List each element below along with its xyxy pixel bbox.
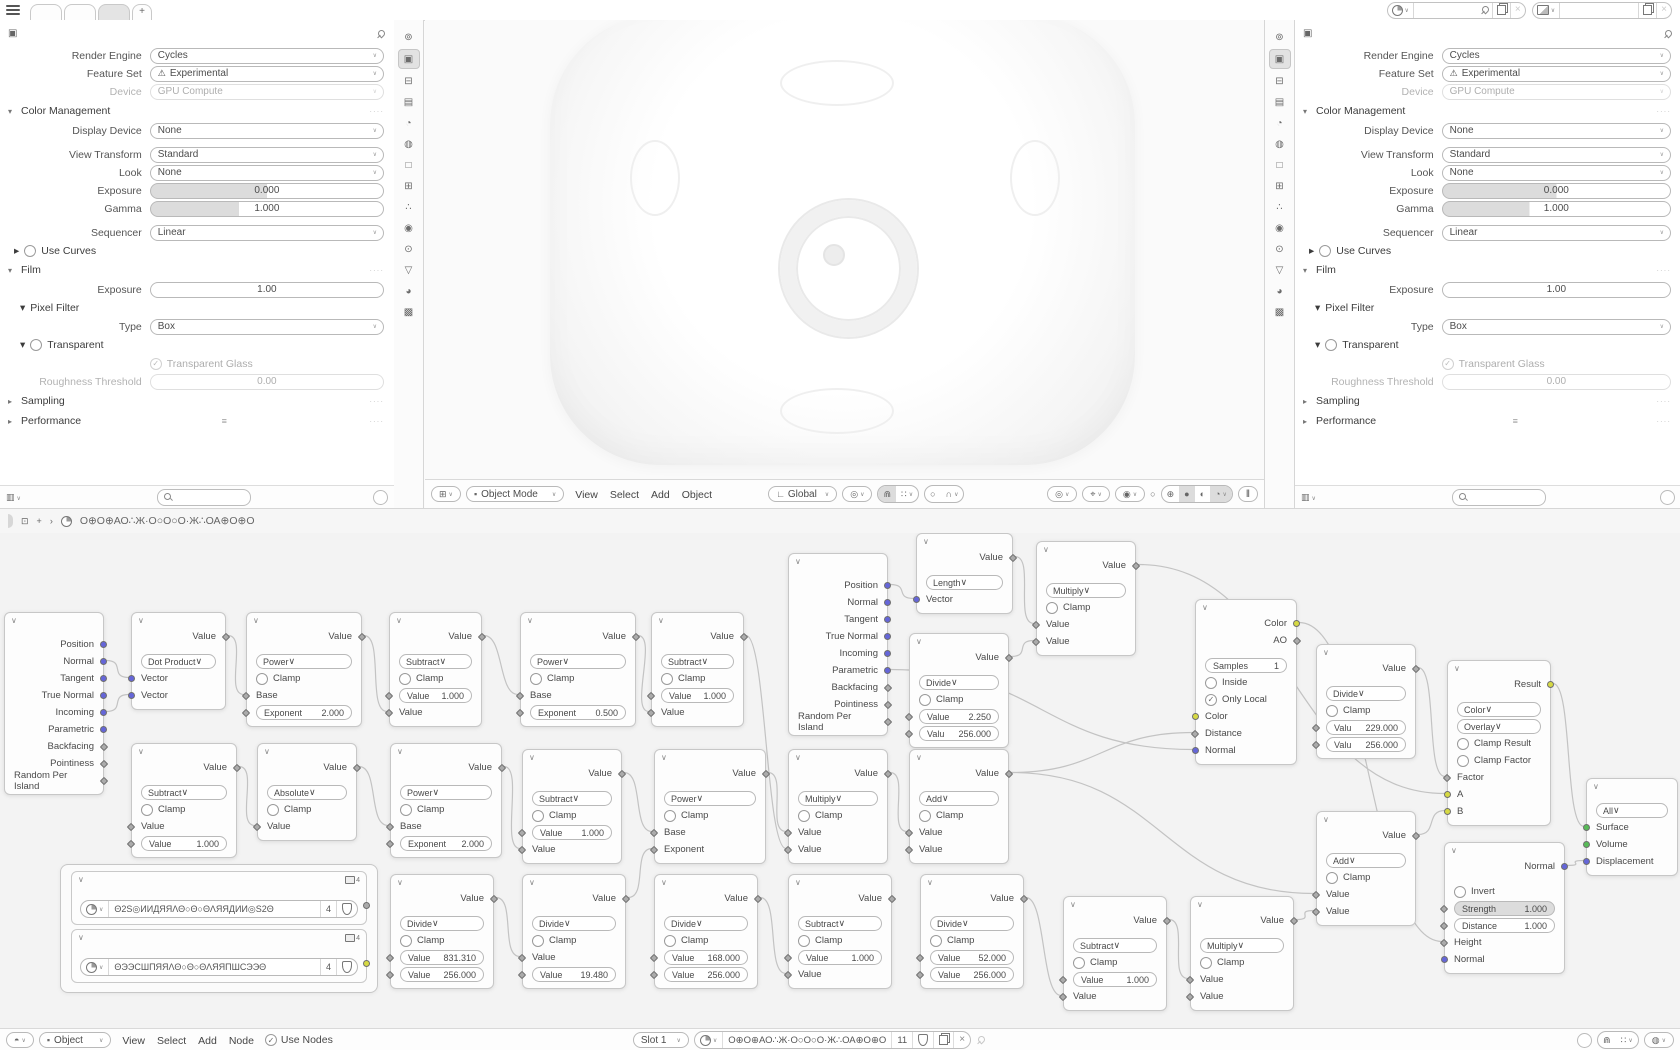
section-performance[interactable]: ▸Performance≡···· bbox=[0, 411, 394, 431]
scene-unlink-button[interactable]: × bbox=[1511, 3, 1525, 18]
look-dropdown[interactable]: None∨ bbox=[1442, 165, 1671, 181]
fake-user-button[interactable] bbox=[337, 901, 357, 917]
viewlayer-selector[interactable]: ∨ bbox=[1533, 3, 1560, 18]
list-menu-icon[interactable]: ≡ bbox=[222, 416, 227, 426]
value-field[interactable]: Value256.000 bbox=[400, 967, 484, 982]
input-socket[interactable] bbox=[1192, 747, 1199, 754]
use-nodes-checkbox[interactable]: ✓Use Nodes bbox=[265, 1034, 333, 1046]
node-abs[interactable]: ∨ValueAbsolute∨ClampValue bbox=[257, 743, 357, 841]
display-device-dropdown[interactable]: None∨ bbox=[1442, 123, 1671, 139]
checkbox[interactable] bbox=[919, 694, 931, 706]
checkbox[interactable] bbox=[530, 673, 542, 685]
value-field[interactable]: Value1.000 bbox=[661, 688, 734, 703]
output-socket[interactable] bbox=[884, 633, 891, 640]
proportional-falloff[interactable]: ∩∨ bbox=[941, 486, 964, 502]
power-dropdown[interactable]: Power∨ bbox=[400, 785, 492, 800]
output-socket[interactable] bbox=[100, 692, 107, 699]
node-length[interactable]: ∨ValueLength∨Vector bbox=[916, 533, 1013, 614]
subsection-transparent[interactable]: ▾Transparent bbox=[0, 336, 394, 354]
menu-add[interactable]: Add bbox=[192, 1035, 223, 1047]
scene-properties-tab[interactable]: ◔ bbox=[399, 114, 419, 132]
collapsed-use-curves[interactable]: ▸Use Curves bbox=[1295, 242, 1680, 260]
feature-set-dropdown[interactable]: ⚠Experimental∨ bbox=[150, 66, 384, 82]
node-header[interactable]: ∨4 bbox=[72, 872, 366, 887]
collapse-chevron-icon[interactable]: ∨ bbox=[529, 878, 535, 887]
node-subD[interactable]: ∨ValueSubtract∨ClampValue1.000Value bbox=[1063, 896, 1167, 1011]
value-field[interactable]: Value52.000 bbox=[930, 950, 1014, 965]
editor-type-icon[interactable]: ▥∨ bbox=[6, 492, 21, 503]
section-color-management[interactable]: ▾Color Management···· bbox=[1295, 101, 1680, 121]
add-dropdown[interactable]: Add∨ bbox=[1326, 853, 1406, 868]
world-properties-tab[interactable]: ◍ bbox=[399, 135, 419, 153]
collapsed-use-curves[interactable]: ▸Use Curves bbox=[0, 242, 394, 260]
node-addR[interactable]: ∨ValueAdd∨ClampValueValue bbox=[1316, 811, 1416, 926]
device-dropdown[interactable]: GPU Compute∨ bbox=[1442, 84, 1671, 100]
value-field[interactable]: Value256.000 bbox=[664, 967, 748, 982]
material-unlink-button[interactable]: × bbox=[954, 1032, 970, 1048]
render-properties-tab[interactable]: ▣ bbox=[398, 49, 420, 69]
viewlayer-name-field[interactable] bbox=[1560, 3, 1639, 18]
node-header[interactable]: ∨ bbox=[1064, 897, 1166, 912]
node-dot[interactable]: ∨ValueDot Product∨VectorVector bbox=[131, 612, 226, 710]
checkbox[interactable] bbox=[661, 673, 673, 685]
snap-mode[interactable]: ∷∨ bbox=[896, 486, 918, 502]
node-geometry2[interactable]: ∨PositionNormalTangentTrue NormalIncomin… bbox=[788, 553, 888, 736]
subsection-transparent[interactable]: ▾Transparent bbox=[1295, 336, 1680, 354]
subsection-pixel-filter[interactable]: ▾Pixel Filter bbox=[0, 299, 394, 317]
material-properties-tab[interactable]: ◕ bbox=[399, 282, 419, 300]
filter-button[interactable] bbox=[1660, 490, 1675, 505]
frame-node-1[interactable]: ∨4∨ΘЭЭСШПЯЯΛΘ○Θ○ΘΛЯЯПШСЭЭΘ4 bbox=[71, 929, 367, 983]
collapse-chevron-icon[interactable]: ∨ bbox=[138, 747, 144, 756]
node-header[interactable]: ∨ bbox=[789, 750, 887, 765]
collapse-handle[interactable] bbox=[8, 514, 13, 528]
node-header[interactable]: ∨ bbox=[655, 750, 765, 765]
value-field[interactable]: Value831.310 bbox=[400, 950, 484, 965]
valu-field[interactable]: Valu256.000 bbox=[1326, 737, 1406, 752]
strength-field[interactable]: Strength1.000 bbox=[1454, 901, 1555, 916]
node-frame[interactable]: ∨4∨Θ2Ѕ◎ИИДЯЯΛΘ○Θ○ΘΛЯЯДИИ◎Ѕ2Θ4∨4∨ΘЭЭСШПЯЯ… bbox=[60, 864, 378, 993]
collapse-chevron-icon[interactable]: ∨ bbox=[923, 537, 929, 546]
output-socket[interactable] bbox=[363, 960, 370, 967]
collapse-chevron-icon[interactable]: ∨ bbox=[397, 878, 403, 887]
checkbox[interactable] bbox=[1326, 705, 1338, 717]
input-socket[interactable] bbox=[128, 675, 135, 682]
node-header[interactable]: ∨ bbox=[917, 534, 1012, 549]
collapse-chevron-icon[interactable]: ∨ bbox=[795, 878, 801, 887]
list-menu-icon[interactable]: ≡ bbox=[1513, 416, 1518, 426]
divide-dropdown[interactable]: Divide∨ bbox=[532, 916, 616, 931]
particles-properties-tab[interactable]: ∴ bbox=[399, 198, 419, 216]
subsection-checkbox[interactable] bbox=[30, 339, 42, 351]
color-dropdown[interactable]: Color∨ bbox=[1457, 702, 1541, 717]
orientation-dropdown[interactable]: ∟Global∨ bbox=[768, 486, 837, 502]
collapse-chevron-icon[interactable]: ∨ bbox=[78, 933, 84, 942]
output-socket[interactable] bbox=[1547, 681, 1554, 688]
snap-toggle[interactable]: ⋒ bbox=[878, 486, 896, 502]
checkbox[interactable] bbox=[400, 804, 412, 816]
node-header[interactable]: ∨ bbox=[523, 875, 625, 890]
checkbox[interactable] bbox=[1457, 738, 1469, 750]
subsection-pixel-filter[interactable]: ▾Pixel Filter bbox=[1295, 299, 1680, 317]
section-sampling[interactable]: ▸Sampling···· bbox=[0, 391, 394, 411]
node-bump[interactable]: ∨NormalInvertStrength1.000Distance1.000H… bbox=[1444, 842, 1565, 974]
value-field[interactable]: Value1.000 bbox=[399, 688, 472, 703]
overlays-dropdown[interactable]: ⌖∨ bbox=[1082, 486, 1109, 502]
value-field[interactable]: Value256.000 bbox=[930, 967, 1014, 982]
node-header[interactable]: ∨ bbox=[910, 634, 1008, 649]
node-header[interactable]: ∨ bbox=[652, 613, 743, 628]
object-properties-tab[interactable]: □ bbox=[1270, 156, 1290, 174]
node-header[interactable]: ∨ bbox=[1587, 779, 1677, 794]
checkbox[interactable] bbox=[1326, 872, 1338, 884]
subtract-dropdown[interactable]: Subtract∨ bbox=[661, 654, 734, 669]
editor-type-icon[interactable]: ▥∨ bbox=[1301, 492, 1316, 503]
dot-product-dropdown[interactable]: Dot Product∨ bbox=[141, 654, 216, 669]
all-dropdown[interactable]: All∨ bbox=[1596, 803, 1668, 818]
output-socket[interactable] bbox=[363, 902, 370, 909]
section-performance[interactable]: ▸Performance≡···· bbox=[1295, 411, 1680, 431]
length-dropdown[interactable]: Length∨ bbox=[926, 575, 1003, 590]
view-transform-dropdown[interactable]: Standard∨ bbox=[150, 147, 384, 163]
samples-field[interactable]: Samples1 bbox=[1205, 658, 1287, 673]
object-data-properties-tab[interactable]: ▽ bbox=[399, 261, 419, 279]
node-header[interactable]: ∨ bbox=[132, 744, 236, 759]
checkbox[interactable] bbox=[1454, 886, 1466, 898]
checkbox[interactable] bbox=[256, 673, 268, 685]
menu-select[interactable]: Select bbox=[151, 1035, 192, 1047]
render-engine-dropdown[interactable]: Cycles∨ bbox=[150, 48, 384, 64]
checkbox[interactable] bbox=[399, 673, 411, 685]
collapse-chevron-icon[interactable]: ∨ bbox=[78, 875, 84, 884]
physics-properties-tab[interactable]: ◉ bbox=[399, 219, 419, 237]
checkbox[interactable] bbox=[664, 810, 676, 822]
material-properties-tab[interactable]: ◕ bbox=[1270, 282, 1290, 300]
checkbox[interactable]: ✓ bbox=[1205, 694, 1217, 706]
multiply-dropdown[interactable]: Multiply∨ bbox=[1046, 583, 1126, 598]
node-header[interactable]: ∨ bbox=[1317, 812, 1415, 827]
value-field[interactable]: Value19.480 bbox=[532, 967, 616, 982]
material-new-button[interactable] bbox=[934, 1032, 954, 1048]
node-ao[interactable]: ∨ColorAOSamples1Inside✓Only LocalColorDi… bbox=[1195, 599, 1297, 765]
pin-icon[interactable] bbox=[1480, 6, 1488, 14]
output-socket[interactable] bbox=[884, 667, 891, 674]
viewlayer-remove-button[interactable]: × bbox=[1657, 3, 1671, 18]
input-socket[interactable] bbox=[1441, 956, 1448, 963]
node-header[interactable]: ∨ bbox=[1445, 843, 1564, 858]
gamma-field[interactable]: 1.000 bbox=[1442, 201, 1671, 217]
divide-dropdown[interactable]: Divide∨ bbox=[400, 916, 484, 931]
subtract-dropdown[interactable]: Subtract∨ bbox=[399, 654, 472, 669]
value-field[interactable]: Value1.000 bbox=[1073, 972, 1157, 987]
collapse-chevron-icon[interactable]: ∨ bbox=[264, 747, 270, 756]
node-divB[interactable]: ∨ValueDivide∨ClampValueValue19.480 bbox=[522, 874, 626, 989]
fake-user-button[interactable] bbox=[913, 1032, 934, 1048]
frame-node-0[interactable]: ∨4∨Θ2Ѕ◎ИИДЯЯΛΘ○Θ○ΘΛЯЯДИИ◎Ѕ2Θ4 bbox=[71, 871, 367, 925]
subtract-dropdown[interactable]: Subtract∨ bbox=[798, 916, 882, 931]
input-socket[interactable] bbox=[1444, 791, 1451, 798]
collapse-chevron-icon[interactable]: ∨ bbox=[916, 637, 922, 646]
node-div229[interactable]: ∨ValueDivide∨ClampValu229.000Valu256.000 bbox=[1316, 644, 1416, 759]
exponent-field[interactable]: Exponent2.000 bbox=[256, 705, 352, 720]
collapse-chevron-icon[interactable]: ∨ bbox=[527, 616, 533, 625]
overlays-dropdown[interactable]: ◍∨ bbox=[1644, 1032, 1674, 1048]
collapse-chevron-icon[interactable]: ∨ bbox=[795, 753, 801, 762]
output-properties-tab[interactable]: ⊟ bbox=[399, 72, 419, 90]
collapse-chevron-icon[interactable]: ∨ bbox=[1202, 603, 1208, 612]
browse-material-button[interactable]: ∨ bbox=[81, 959, 109, 975]
node-header[interactable]: ∨ bbox=[789, 875, 891, 890]
constraints-properties-tab[interactable]: ⊙ bbox=[1270, 240, 1290, 258]
value-field[interactable]: Value2.250 bbox=[919, 709, 999, 724]
viewport-canvas[interactable] bbox=[425, 20, 1264, 480]
value-field[interactable]: Value1.000 bbox=[532, 825, 612, 840]
output-socket[interactable] bbox=[100, 675, 107, 682]
menu-select[interactable]: Select bbox=[604, 489, 645, 501]
tool-properties-tab[interactable]: ⊚ bbox=[1270, 28, 1290, 46]
editor-type-button[interactable]: ◓∨ bbox=[6, 1032, 34, 1048]
modifiers-properties-tab[interactable]: ⊞ bbox=[1270, 177, 1290, 195]
feature-set-dropdown[interactable]: ⚠Experimental∨ bbox=[1442, 66, 1671, 82]
node-header[interactable]: ∨ bbox=[789, 554, 887, 569]
texture-properties-tab[interactable]: ▩ bbox=[1270, 303, 1290, 321]
node-header[interactable]: ∨ bbox=[1196, 600, 1296, 615]
add-workspace-button[interactable]: + bbox=[132, 4, 152, 20]
node-subC[interactable]: ∨ValueSubtract∨ClampValue1.000Value bbox=[788, 874, 892, 989]
input-socket[interactable] bbox=[1583, 824, 1590, 831]
collapse-chevron-icon[interactable]: ∨ bbox=[661, 753, 667, 762]
node-header[interactable]: ∨ bbox=[390, 613, 481, 628]
hamburger-menu-icon[interactable] bbox=[6, 5, 20, 15]
checkbox[interactable] bbox=[1046, 602, 1058, 614]
exposure-field[interactable]: 1.00 bbox=[1442, 282, 1671, 298]
output-socket[interactable] bbox=[884, 616, 891, 623]
distance-field[interactable]: Distance1.000 bbox=[1454, 918, 1555, 933]
use-curves-checkbox[interactable] bbox=[24, 245, 36, 257]
proportional-toggle[interactable]: ○ bbox=[925, 486, 940, 502]
menu-add[interactable]: Add bbox=[645, 489, 676, 501]
search-input[interactable] bbox=[1452, 489, 1546, 506]
output-socket[interactable] bbox=[100, 709, 107, 716]
node-header[interactable]: ∨ bbox=[910, 750, 1008, 765]
slot-dropdown[interactable]: Slot 1∨ bbox=[633, 1032, 689, 1048]
mode-dropdown[interactable]: ▪Object Mode∨ bbox=[466, 486, 564, 502]
input-socket[interactable] bbox=[1583, 841, 1590, 848]
collapse-chevron-icon[interactable]: ∨ bbox=[396, 616, 402, 625]
browse-material-button[interactable]: ∨ bbox=[81, 901, 109, 917]
users-count[interactable]: 4 bbox=[321, 959, 337, 975]
collapse-chevron-icon[interactable]: ∨ bbox=[1197, 900, 1203, 909]
exponent-field[interactable]: Exponent2.000 bbox=[400, 836, 492, 851]
subtract-dropdown[interactable]: Subtract∨ bbox=[532, 791, 612, 806]
node-powC[interactable]: ∨ValuePower∨ClampBaseExponent bbox=[654, 749, 766, 864]
roughness-threshold-field[interactable]: 0.00 bbox=[150, 374, 384, 390]
snap-mode[interactable]: ∷∨ bbox=[1616, 1032, 1638, 1048]
collapse-chevron-icon[interactable]: ∨ bbox=[11, 616, 17, 625]
collapse-chevron-icon[interactable]: ∨ bbox=[253, 616, 259, 625]
viewlayer-new-button[interactable] bbox=[1639, 3, 1657, 18]
divide-dropdown[interactable]: Divide∨ bbox=[664, 916, 748, 931]
node-header[interactable]: ∨ bbox=[247, 613, 361, 628]
node-header[interactable]: ∨ bbox=[1448, 661, 1550, 676]
add-dropdown[interactable]: Add∨ bbox=[919, 791, 999, 806]
collapse-chevron-icon[interactable]: ∨ bbox=[1070, 900, 1076, 909]
datablock-name-field[interactable]: ΘЭЭСШПЯЯΛΘ○Θ○ΘΛЯЯПШСЭЭΘ bbox=[109, 959, 321, 975]
use-curves-checkbox[interactable] bbox=[1319, 245, 1331, 257]
checkbox[interactable] bbox=[532, 810, 544, 822]
scene-properties-tab[interactable]: ◔ bbox=[1270, 114, 1290, 132]
node-header[interactable]: ∨ bbox=[521, 613, 635, 628]
scene-name-field[interactable] bbox=[1414, 3, 1493, 18]
input-socket[interactable] bbox=[1192, 713, 1199, 720]
fake-user-button[interactable] bbox=[337, 959, 357, 975]
device-dropdown[interactable]: GPU Compute∨ bbox=[150, 84, 384, 100]
node-header[interactable]: ∨ bbox=[258, 744, 356, 759]
node-header[interactable]: ∨ bbox=[523, 750, 621, 765]
output-socket[interactable] bbox=[884, 582, 891, 589]
checkbox[interactable] bbox=[798, 935, 810, 947]
section-film[interactable]: ▾Film···· bbox=[0, 260, 394, 280]
output-properties-tab[interactable]: ⊟ bbox=[1270, 72, 1290, 90]
subtract-dropdown[interactable]: Subtract∨ bbox=[141, 785, 227, 800]
collapse-chevron-icon[interactable]: ∨ bbox=[1451, 846, 1457, 855]
pin-icon[interactable] bbox=[1663, 30, 1671, 38]
type-dropdown[interactable]: Box∨ bbox=[150, 319, 384, 335]
collapse-chevron-icon[interactable]: ∨ bbox=[661, 878, 667, 887]
divide-dropdown[interactable]: Divide∨ bbox=[1326, 686, 1406, 701]
collapse-chevron-icon[interactable]: ∨ bbox=[927, 878, 933, 887]
value-field[interactable]: Value1.000 bbox=[798, 950, 882, 965]
gamma-field[interactable]: 1.000 bbox=[150, 201, 384, 217]
collapse-chevron-icon[interactable]: ∨ bbox=[1043, 545, 1049, 554]
checkbox[interactable] bbox=[798, 810, 810, 822]
divide-dropdown[interactable]: Divide∨ bbox=[919, 675, 999, 690]
collapse-chevron-icon[interactable]: ∨ bbox=[397, 747, 403, 756]
node-header[interactable]: ∨ bbox=[921, 875, 1023, 890]
checkbox[interactable] bbox=[1457, 755, 1469, 767]
browse-material-button[interactable]: ∨ bbox=[695, 1032, 723, 1048]
users-count[interactable]: 4 bbox=[321, 901, 337, 917]
node-divD[interactable]: ∨ValueDivide∨ClampValue52.000Value256.00… bbox=[920, 874, 1024, 989]
valu-field[interactable]: Valu256.000 bbox=[919, 726, 999, 741]
node-header[interactable]: ∨ bbox=[1037, 542, 1135, 557]
shading-rendered[interactable]: ◔∨ bbox=[1210, 486, 1232, 502]
tool-properties-tab[interactable]: ⊚ bbox=[399, 28, 419, 46]
node-header[interactable]: ∨ bbox=[5, 613, 103, 628]
output-socket[interactable] bbox=[1293, 620, 1300, 627]
power-dropdown[interactable]: Power∨ bbox=[256, 654, 352, 669]
modifiers-properties-tab[interactable]: ⊞ bbox=[399, 177, 419, 195]
node-subB[interactable]: ∨ValueSubtract∨ClampValue1.000Value bbox=[522, 749, 622, 864]
render-properties-tab[interactable]: ▣ bbox=[1269, 49, 1291, 69]
exposure-field[interactable]: 1.00 bbox=[150, 282, 384, 298]
node-canvas[interactable]: ∨PositionNormalTangentTrue NormalIncomin… bbox=[0, 533, 1680, 1029]
collapse-chevron-icon[interactable]: ∨ bbox=[529, 753, 535, 762]
node-divC[interactable]: ∨ValueDivide∨ClampValue168.000Value256.0… bbox=[654, 874, 758, 989]
texture-properties-tab[interactable]: ▩ bbox=[399, 303, 419, 321]
checkbox[interactable]: ✓ bbox=[150, 358, 162, 370]
overlay-dropdown[interactable]: Overlay∨ bbox=[1457, 719, 1541, 734]
input-socket[interactable] bbox=[1583, 858, 1590, 865]
menu-view[interactable]: View bbox=[116, 1035, 151, 1047]
node-mix[interactable]: ∨ResultColor∨Overlay∨Clamp ResultClamp F… bbox=[1447, 660, 1551, 826]
object-properties-tab[interactable]: □ bbox=[399, 156, 419, 174]
render-engine-dropdown[interactable]: Cycles∨ bbox=[1442, 48, 1671, 64]
node-power2[interactable]: ∨ValuePower∨ClampBaseExponent0.500 bbox=[520, 612, 636, 727]
physics-properties-tab[interactable]: ◉ bbox=[1270, 219, 1290, 237]
node-multC[interactable]: ∨ValueMultiply∨ClampValueValue bbox=[1190, 896, 1294, 1011]
viewport-3d[interactable]: ⊞∨ ▪Object Mode∨ ViewSelectAddObject ∟Gl… bbox=[425, 20, 1264, 508]
collapse-chevron-icon[interactable]: ∨ bbox=[1323, 815, 1329, 824]
node-divA[interactable]: ∨ValueDivide∨ClampValue831.310Value256.0… bbox=[390, 874, 494, 989]
look-dropdown[interactable]: None∨ bbox=[150, 165, 384, 181]
workspace-tab[interactable] bbox=[30, 4, 62, 20]
exposure-field[interactable]: 0.000 bbox=[150, 183, 384, 199]
node-geometry1[interactable]: ∨PositionNormalTangentTrue NormalIncomin… bbox=[4, 612, 104, 795]
valu-field[interactable]: Valu229.000 bbox=[1326, 720, 1406, 735]
show-gizmo-dropdown[interactable]: ◎∨ bbox=[1047, 486, 1077, 502]
type-dropdown[interactable]: Box∨ bbox=[1442, 319, 1671, 335]
view-layer-properties-tab[interactable]: ▤ bbox=[399, 93, 419, 111]
collapse-chevron-icon[interactable]: ∨ bbox=[1454, 664, 1460, 673]
particles-properties-tab[interactable]: ∴ bbox=[1270, 198, 1290, 216]
scene-new-button[interactable] bbox=[1493, 3, 1511, 18]
checkbox[interactable] bbox=[141, 804, 153, 816]
datablock-name-field[interactable]: Θ2Ѕ◎ИИДЯЯΛΘ○Θ○ΘΛЯЯДИИ◎Ѕ2Θ bbox=[109, 901, 321, 917]
section-color-management[interactable]: ▾Color Management···· bbox=[0, 101, 394, 121]
absolute-dropdown[interactable]: Absolute∨ bbox=[267, 785, 347, 800]
overlay-toggle[interactable] bbox=[1577, 1033, 1592, 1048]
output-socket[interactable] bbox=[100, 641, 107, 648]
node-header[interactable]: ∨ bbox=[391, 875, 493, 890]
node-sub1[interactable]: ∨ValueSubtract∨ClampValue1.000Value bbox=[389, 612, 482, 727]
checkbox[interactable] bbox=[919, 810, 931, 822]
value-field[interactable]: Value168.000 bbox=[664, 950, 748, 965]
view-layer-properties-tab[interactable]: ▤ bbox=[1270, 93, 1290, 111]
checkbox[interactable] bbox=[664, 935, 676, 947]
checkbox[interactable] bbox=[1200, 957, 1212, 969]
checkbox[interactable] bbox=[930, 935, 942, 947]
scene-selector[interactable]: ∨ bbox=[1388, 3, 1414, 18]
node-subA[interactable]: ∨ValueSubtract∨ClampValueValue1.000 bbox=[131, 743, 237, 858]
section-film[interactable]: ▾Film···· bbox=[1295, 260, 1680, 280]
material-users-count[interactable]: 11 bbox=[892, 1032, 913, 1048]
filter-button[interactable] bbox=[373, 490, 388, 505]
display-device-dropdown[interactable]: None∨ bbox=[150, 123, 384, 139]
output-socket[interactable] bbox=[100, 658, 107, 665]
pin-icon[interactable] bbox=[976, 1036, 984, 1044]
collapse-chevron-icon[interactable]: ∨ bbox=[658, 616, 664, 625]
value-field[interactable]: Value1.000 bbox=[141, 836, 227, 851]
multiply-dropdown[interactable]: Multiply∨ bbox=[798, 791, 878, 806]
exponent-field[interactable]: Exponent0.500 bbox=[530, 705, 626, 720]
collapse-chevron-icon[interactable]: ∨ bbox=[1323, 648, 1329, 657]
workspace-tab[interactable] bbox=[64, 4, 96, 20]
output-socket[interactable] bbox=[884, 599, 891, 606]
search-input[interactable] bbox=[157, 489, 251, 506]
xray-dropdown[interactable]: ◉∨ bbox=[1115, 486, 1145, 502]
world-properties-tab[interactable]: ◍ bbox=[1270, 135, 1290, 153]
editor-type-button[interactable]: ⊞∨ bbox=[431, 486, 461, 502]
subtract-dropdown[interactable]: Subtract∨ bbox=[1073, 938, 1157, 953]
node-mult1[interactable]: ∨ValueMultiply∨ClampValueValue bbox=[1036, 541, 1136, 656]
shading-wireframe[interactable]: ⊕ bbox=[1162, 486, 1180, 502]
shading-extra-toggle[interactable]: ○ bbox=[1150, 489, 1155, 499]
output-socket[interactable] bbox=[884, 650, 891, 657]
workspace-tab[interactable] bbox=[98, 4, 130, 20]
constraints-properties-tab[interactable]: ⊙ bbox=[399, 240, 419, 258]
node-power1[interactable]: ∨ValuePower∨ClampBaseExponent2.000 bbox=[246, 612, 362, 727]
